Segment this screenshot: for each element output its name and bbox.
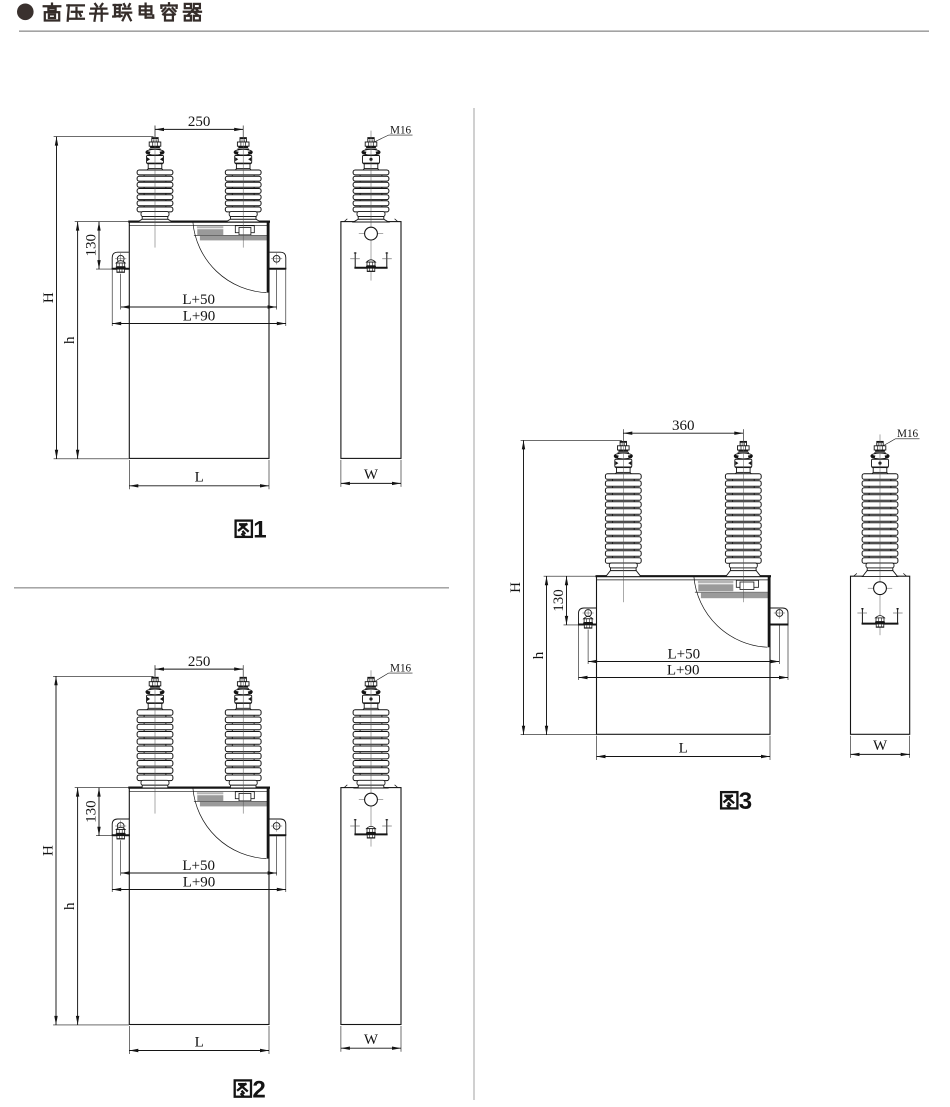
svg-text:M16: M16 [897,428,919,440]
svg-text:L: L [679,740,688,756]
svg-text:L: L [195,470,204,486]
svg-text:L+50: L+50 [182,292,215,308]
svg-text:L+50: L+50 [182,858,215,874]
svg-text:h: h [531,651,547,659]
svg-text:2: 2 [252,1076,265,1103]
svg-text:L+50: L+50 [667,646,700,662]
svg-text:L+90: L+90 [183,874,216,890]
svg-text:M16: M16 [390,662,412,674]
svg-text:H: H [41,845,57,856]
svg-text:1: 1 [253,517,266,544]
svg-text:W: W [364,1032,379,1048]
svg-text:L: L [195,1034,204,1050]
svg-text:L+90: L+90 [183,308,216,324]
svg-text:360: 360 [672,418,695,434]
svg-text:130: 130 [551,589,567,612]
svg-text:3: 3 [739,788,752,815]
svg-text:130: 130 [84,800,100,823]
svg-text:M16: M16 [390,124,412,136]
svg-text:130: 130 [84,234,100,256]
svg-text:H: H [508,582,524,593]
svg-text:W: W [364,467,379,483]
svg-text:h: h [62,336,78,344]
svg-text:250: 250 [188,654,211,670]
svg-text:L+90: L+90 [667,662,700,678]
svg-text:H: H [41,292,57,303]
svg-text:250: 250 [188,114,211,130]
svg-text:h: h [62,902,78,910]
svg-text:W: W [873,738,888,754]
